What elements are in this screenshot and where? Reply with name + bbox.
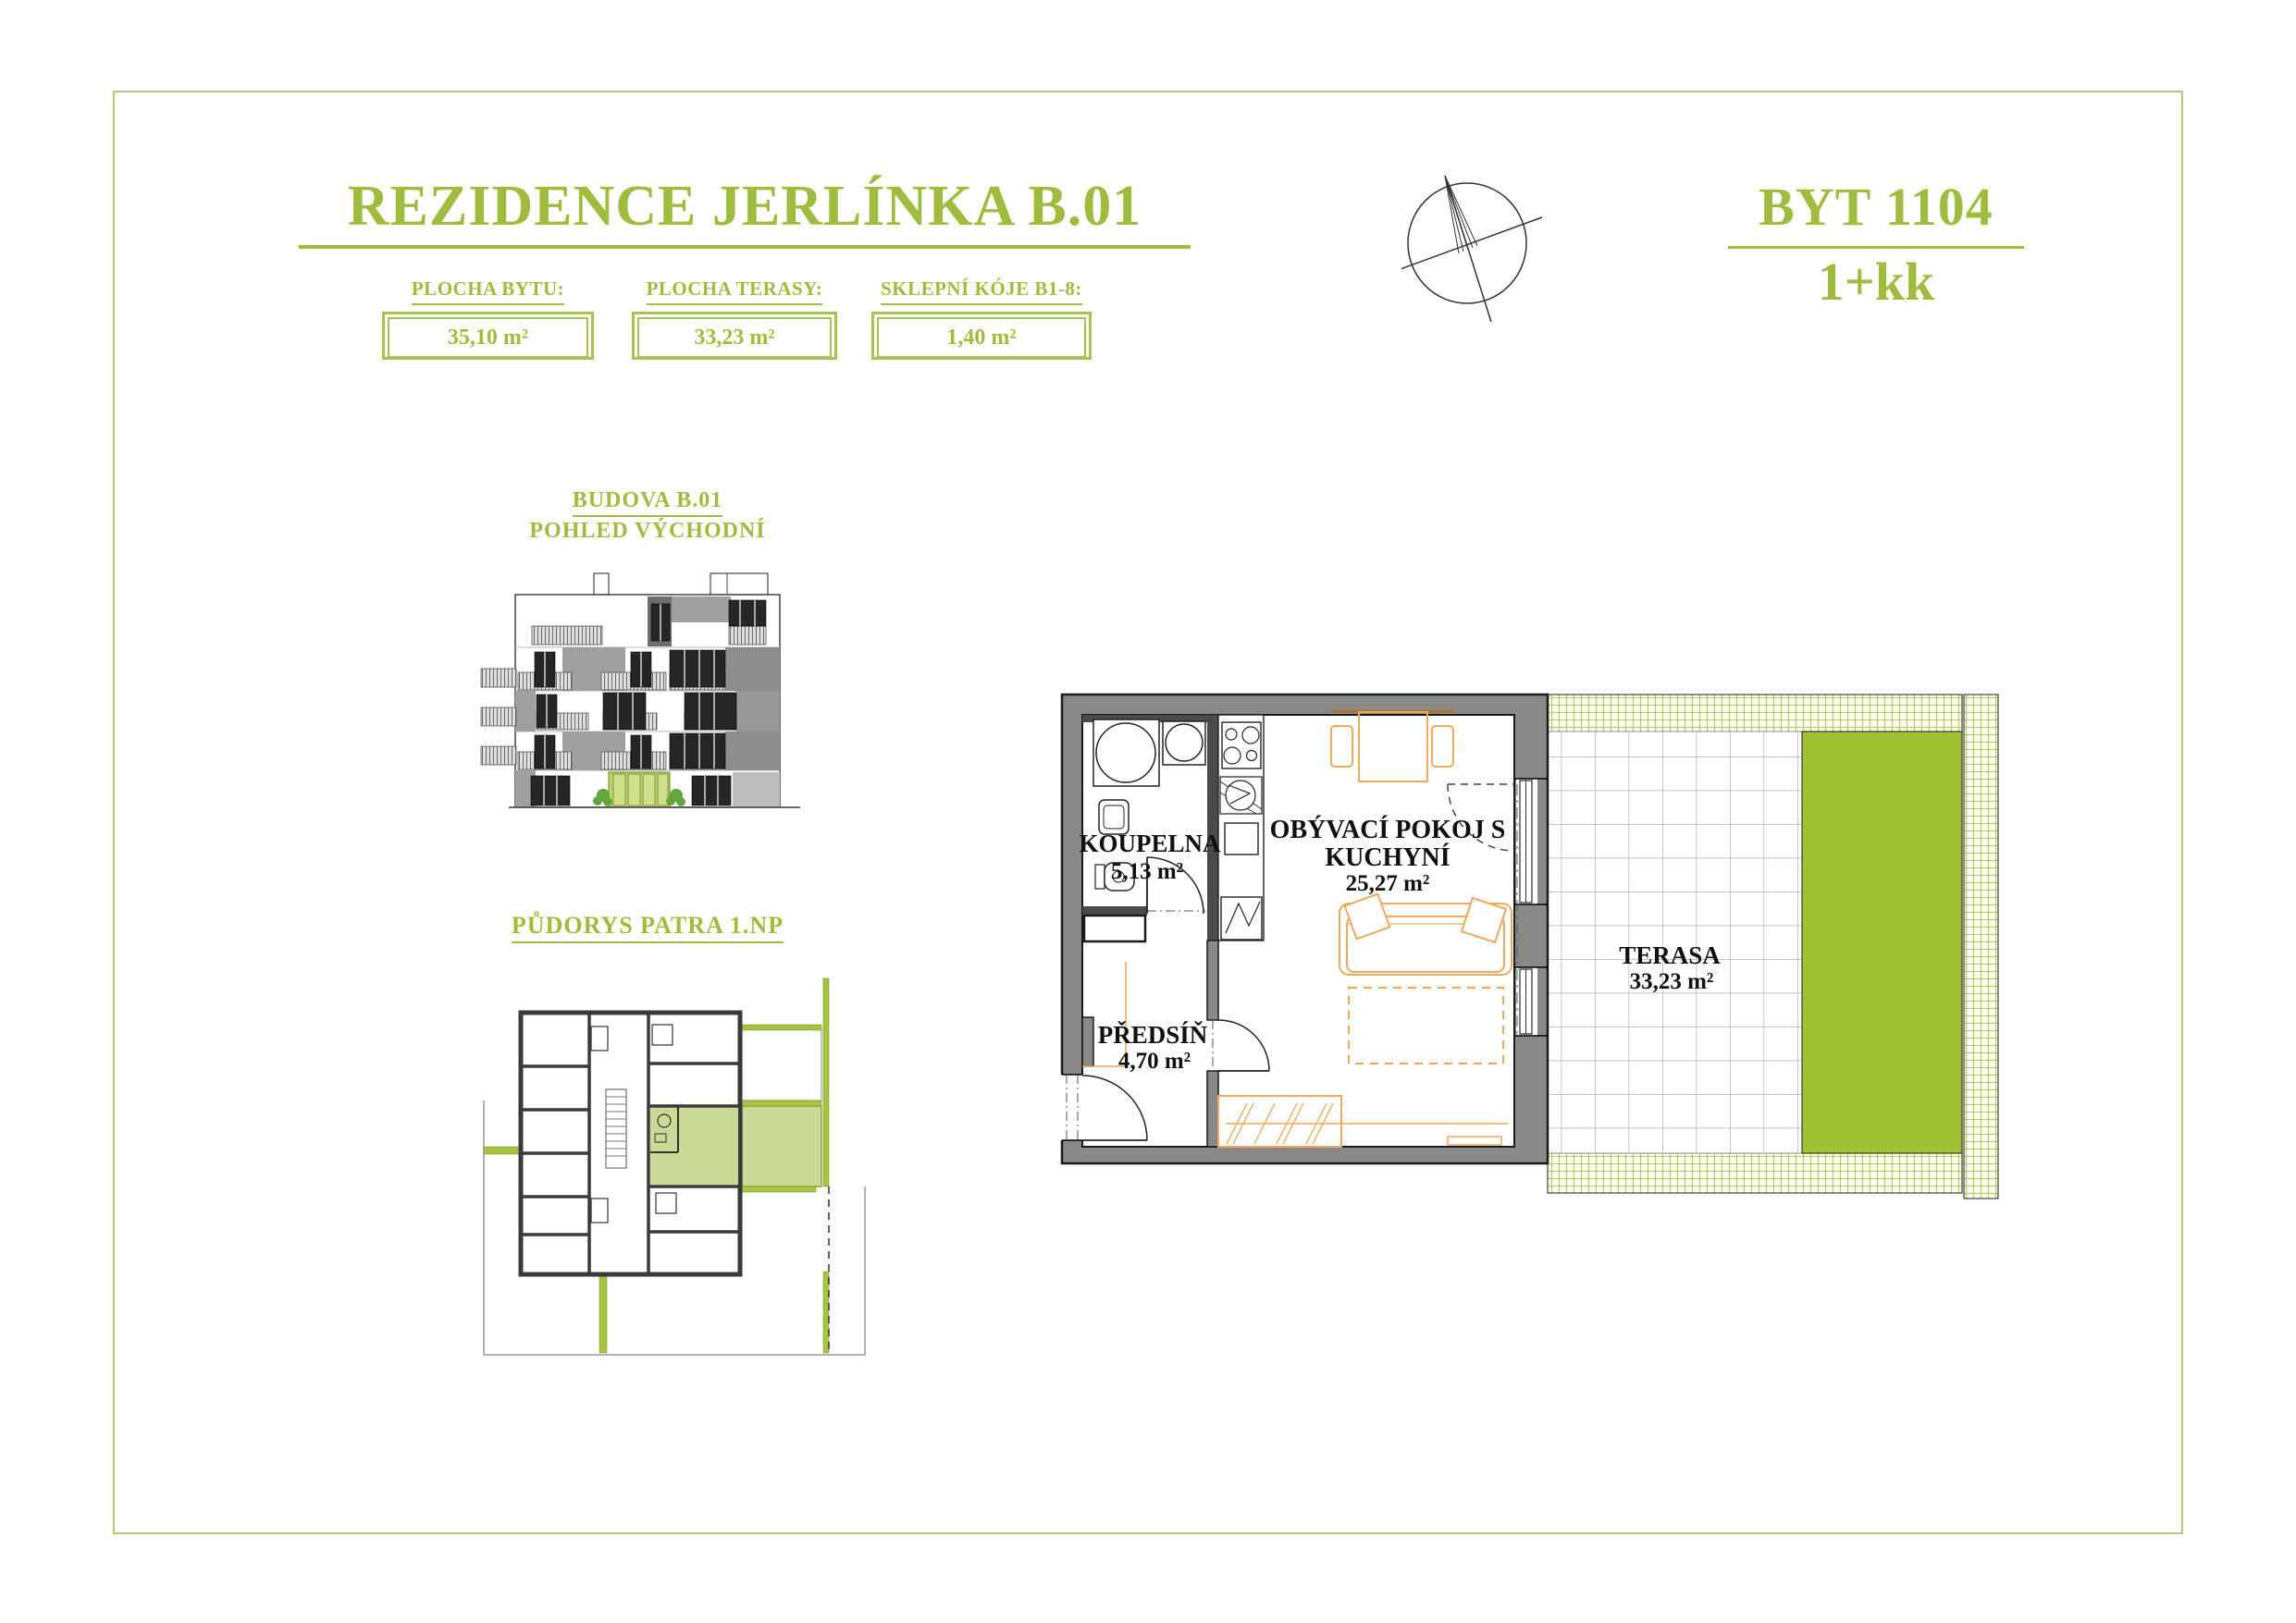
utility-niche bbox=[1084, 916, 1145, 941]
unit-block: BYT 1104 1+kk bbox=[1728, 178, 2024, 311]
unit-layout: 1+kk bbox=[1728, 254, 2024, 311]
highlighted-terrace bbox=[742, 1106, 821, 1187]
room-label-obyvaci-line2: KUCHYNÍ bbox=[1325, 843, 1450, 873]
refrigerator bbox=[1221, 897, 1262, 940]
stat-value: 1,40 m² bbox=[877, 317, 1086, 358]
wall-jog bbox=[1082, 1017, 1093, 1066]
room-area-predsin: 4,70 m² bbox=[1118, 1049, 1191, 1075]
stat-label: PLOCHA TERASY: bbox=[647, 277, 823, 305]
overview-title: PŮDORYS PATRA 1.NP bbox=[481, 912, 814, 943]
room-area-obyvaci: 25,27 m² bbox=[1346, 871, 1430, 897]
stat-sklepni-koje: SKLEPNÍ KÓJE B1-8: 1,40 m² bbox=[871, 277, 1092, 360]
unit-number: BYT 1104 bbox=[1728, 178, 2024, 249]
compass-north-icon bbox=[1401, 166, 1563, 333]
stat-box: 33,23 m² bbox=[632, 312, 837, 360]
page-title: REZIDENCE JERLÍNKA B.01 bbox=[299, 174, 1191, 249]
terrace-green-bed bbox=[1802, 732, 1962, 1153]
building-elevation-drawing bbox=[463, 550, 814, 828]
highlighted-apartment bbox=[650, 1106, 738, 1185]
floor-overview-drawing bbox=[467, 971, 874, 1387]
stat-label: PLOCHA BYTU: bbox=[412, 277, 564, 305]
room-area-koupelna: 5,13 m² bbox=[1111, 859, 1183, 885]
stat-box: 1,40 m² bbox=[871, 312, 1092, 360]
elevation-title-line2: POHLED VÝCHODNÍ bbox=[481, 519, 814, 544]
stat-plocha-terasy: PLOCHA TERASY: 33,23 m² bbox=[632, 277, 837, 360]
roof-boxes bbox=[594, 573, 768, 595]
elevation-title: BUDOVA B.01 POHLED VÝCHODNÍ bbox=[481, 488, 814, 544]
stat-label: SKLEPNÍ KÓJE B1-8: bbox=[881, 277, 1082, 305]
neighbor-terrace bbox=[742, 1028, 821, 1100]
terrace-gravel-band-top bbox=[1548, 695, 1962, 732]
kitchen-counter bbox=[1218, 715, 1264, 941]
kitchen-sink bbox=[1220, 777, 1262, 814]
room-label-terasa: TERASA bbox=[1619, 941, 1721, 970]
overview-title-text: PŮDORYS PATRA 1.NP bbox=[512, 912, 784, 943]
stat-value: 33,23 m² bbox=[637, 317, 832, 358]
stat-plocha-bytu: PLOCHA BYTU: 35,10 m² bbox=[382, 277, 594, 360]
ground-floor-entrance bbox=[609, 772, 670, 807]
stove bbox=[1222, 722, 1261, 768]
stat-box: 35,10 m² bbox=[382, 312, 594, 360]
room-area-terasa: 33,23 m² bbox=[1630, 969, 1714, 995]
elevation-title-line1: BUDOVA B.01 bbox=[573, 488, 723, 517]
room-label-predsin: PŘEDSÍŇ bbox=[1098, 1021, 1208, 1050]
oven bbox=[1225, 823, 1258, 855]
terrace bbox=[1548, 695, 1998, 1199]
terrace-gravel-band-right bbox=[1964, 695, 1998, 1199]
stat-value: 35,10 m² bbox=[388, 317, 588, 358]
apartment-floorplan-drawing bbox=[1055, 689, 2007, 1207]
room-label-obyvaci-line1: OBÝVACÍ POKOJ S bbox=[1270, 816, 1506, 845]
room-label-koupelna: KOUPELNA bbox=[1079, 830, 1220, 858]
staircase bbox=[606, 1089, 626, 1168]
floorplan-sheet: REZIDENCE JERLÍNKA B.01 BYT 1104 1+kk PL… bbox=[0, 0, 2296, 1623]
terrace-gravel-band-bottom bbox=[1548, 1153, 1962, 1193]
